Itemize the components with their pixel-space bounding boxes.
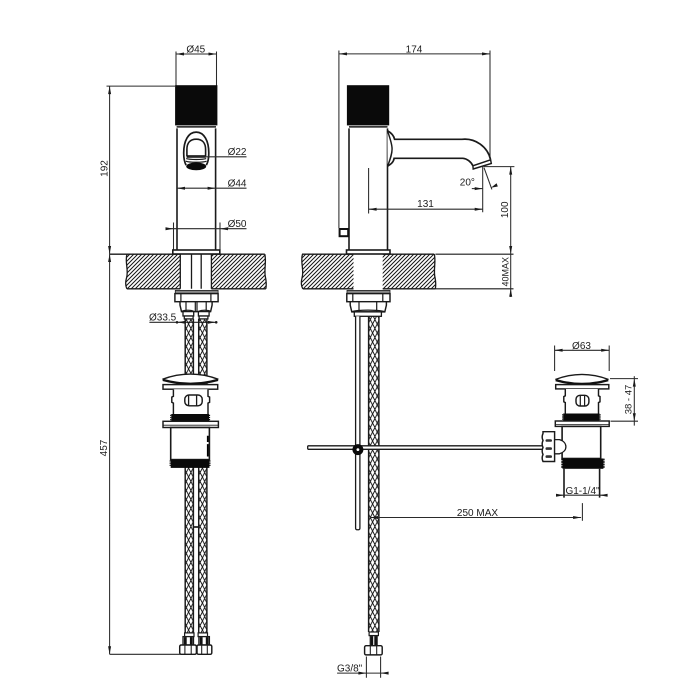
svg-text:Ø44: Ø44 bbox=[228, 178, 247, 189]
svg-text:250 MAX: 250 MAX bbox=[457, 508, 498, 519]
svg-text:Ø63: Ø63 bbox=[572, 341, 591, 352]
svg-text:457: 457 bbox=[99, 439, 110, 456]
svg-text:G3/8": G3/8" bbox=[337, 663, 363, 674]
svg-text:Ø22: Ø22 bbox=[228, 147, 247, 158]
svg-text:Ø33.5: Ø33.5 bbox=[149, 313, 177, 324]
svg-text:174: 174 bbox=[406, 45, 423, 56]
svg-text:G1-1/4": G1-1/4" bbox=[565, 486, 600, 497]
svg-text:Ø45: Ø45 bbox=[186, 44, 205, 55]
svg-text:38 - 47: 38 - 47 bbox=[623, 385, 634, 415]
svg-text:100: 100 bbox=[500, 201, 511, 218]
svg-text:20°: 20° bbox=[460, 177, 475, 188]
svg-text:131: 131 bbox=[417, 199, 434, 210]
svg-text:Ø50: Ø50 bbox=[228, 219, 247, 230]
svg-text:40MAX: 40MAX bbox=[501, 257, 511, 287]
svg-text:192: 192 bbox=[100, 160, 111, 177]
